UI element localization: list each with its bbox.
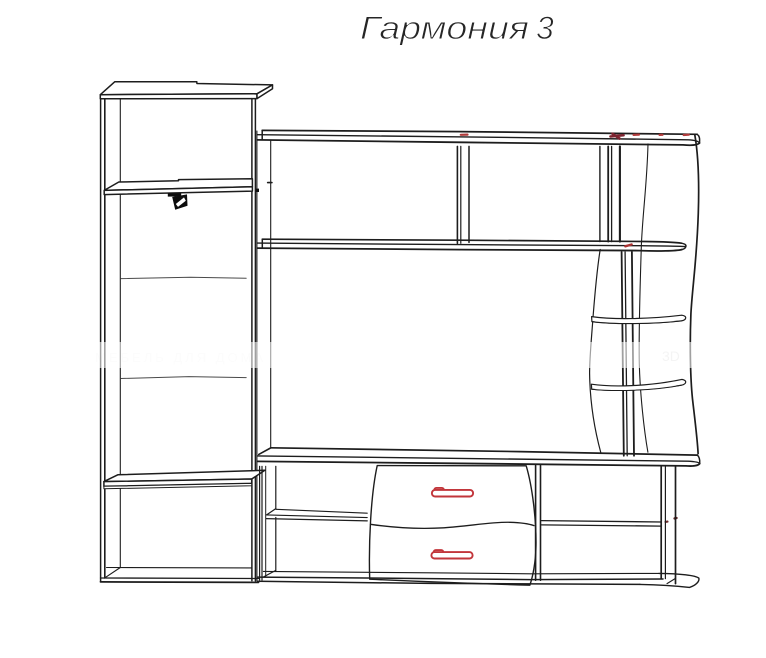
svg-text:3D: 3D — [662, 348, 680, 364]
svg-text:МЕБЕЛЬ ДЛЯ ДОМА: МЕБЕЛЬ ДЛЯ ДОМА — [95, 350, 266, 365]
svg-text:Гармония: Гармония — [360, 10, 529, 46]
svg-text:3: 3 — [536, 10, 554, 46]
